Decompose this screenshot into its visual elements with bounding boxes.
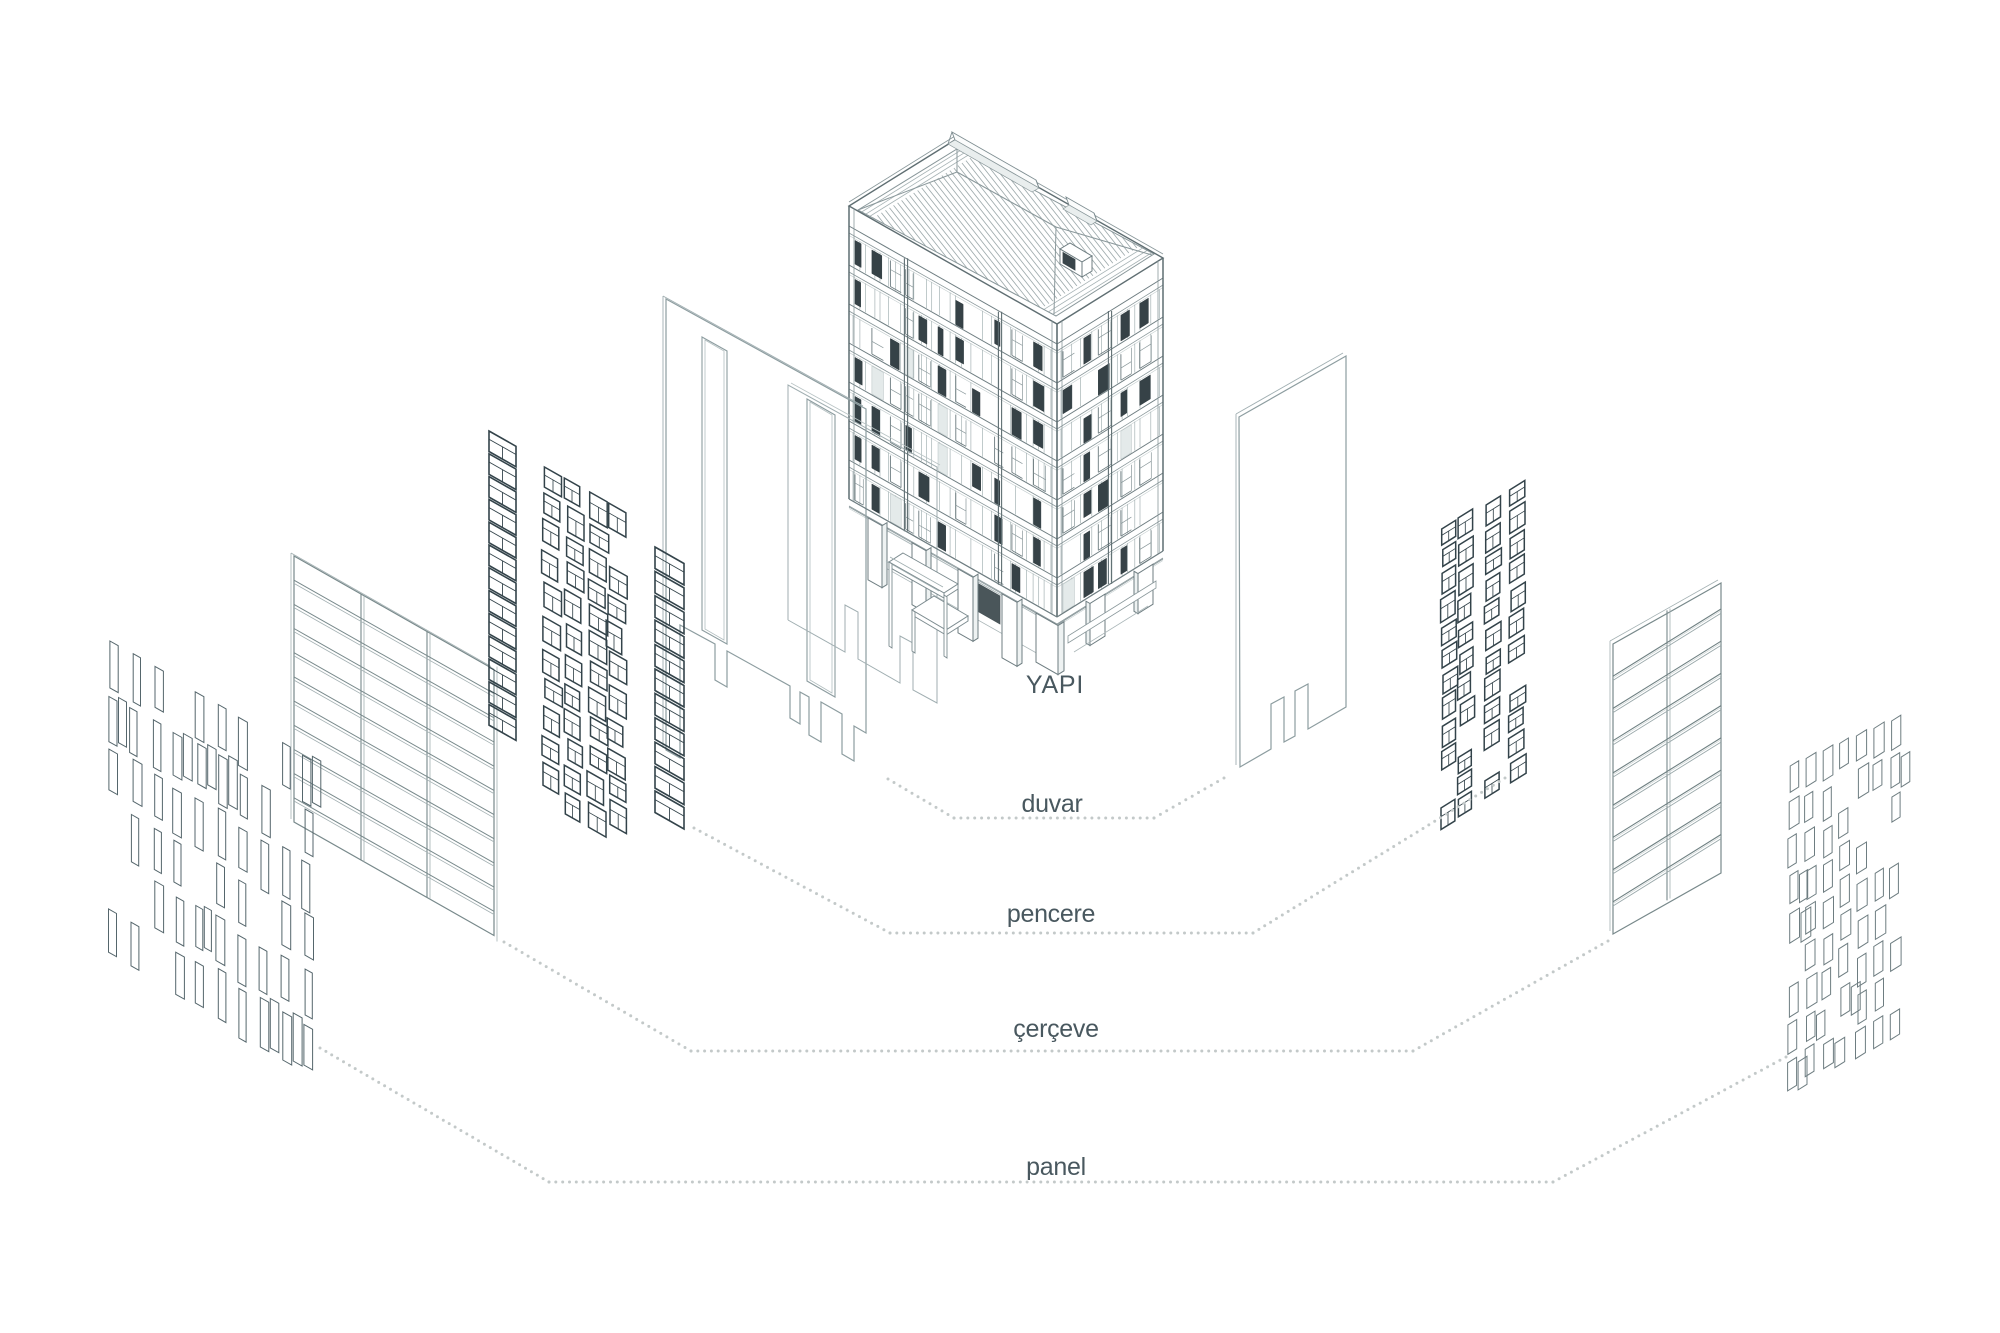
svg-text:pencere: pencere bbox=[1007, 900, 1095, 928]
svg-text:duvar: duvar bbox=[1021, 790, 1082, 818]
svg-text:panel: panel bbox=[1026, 1153, 1086, 1181]
svg-text:çerçeve: çerçeve bbox=[1013, 1015, 1098, 1043]
svg-text:YAPI: YAPI bbox=[1026, 671, 1084, 699]
